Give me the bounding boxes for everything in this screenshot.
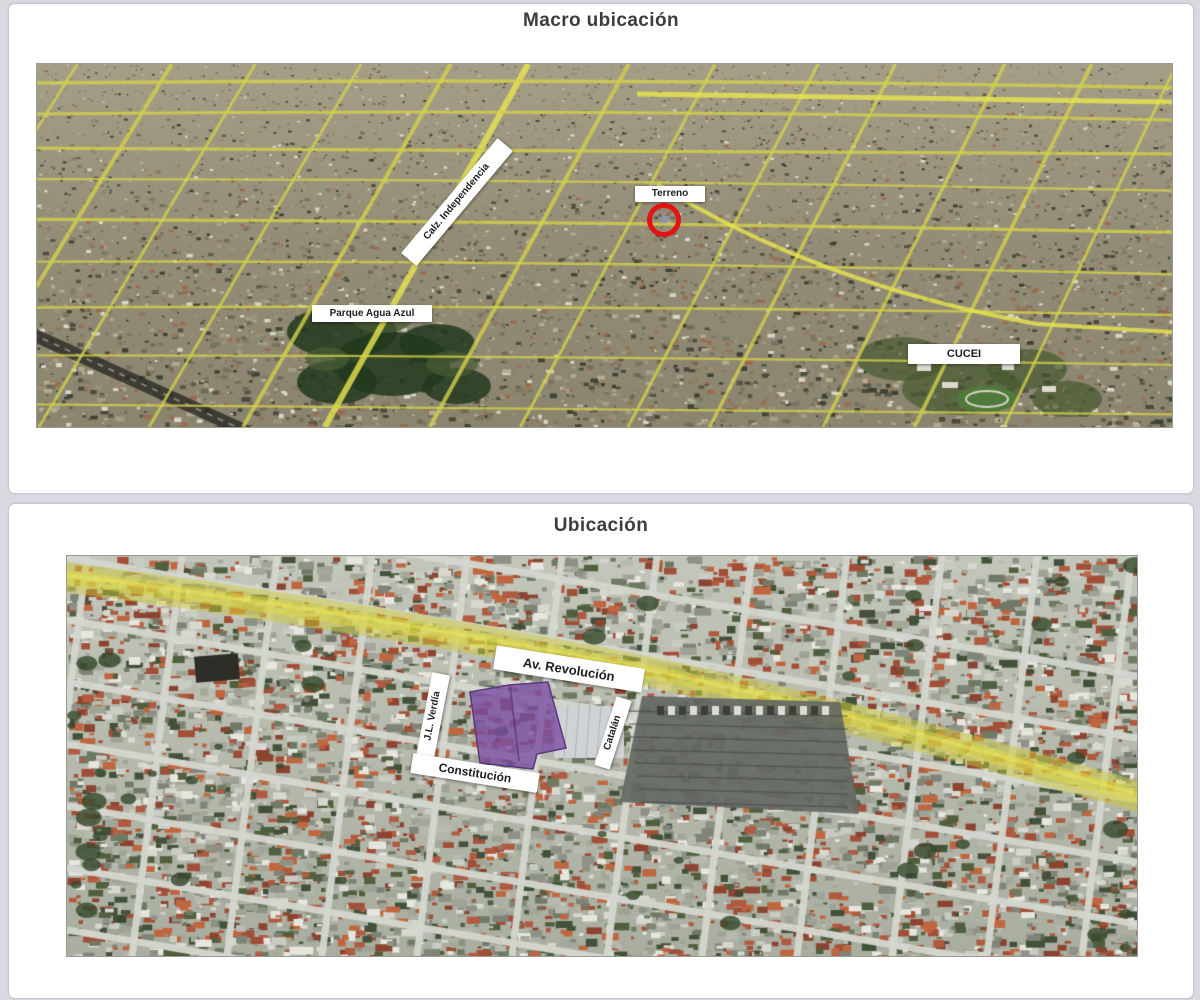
macro-map-image: Calz. Independencia Terreno Parque Agua … (36, 63, 1173, 428)
ubicacion-panel: Ubicación Av. Revolución J.L. Verdía Con… (8, 503, 1194, 999)
macro-ubicacion-panel: Macro ubicación Calz. Independencia Terr… (8, 3, 1194, 494)
terreno-label: Terreno (635, 186, 705, 202)
macro-panel-title: Macro ubicación (9, 10, 1193, 32)
page: Macro ubicación Calz. Independencia Terr… (0, 0, 1200, 1000)
terreno-circle-marker (647, 203, 681, 237)
parque-agua-azul-label: Parque Agua Azul (312, 305, 432, 322)
ubicacion-panel-title: Ubicación (9, 515, 1193, 537)
macro-map-texture (37, 64, 1172, 427)
ubicacion-map-image: Av. Revolución J.L. Verdía Constitución … (66, 555, 1138, 957)
cucei-label: CUCEI (908, 344, 1020, 364)
